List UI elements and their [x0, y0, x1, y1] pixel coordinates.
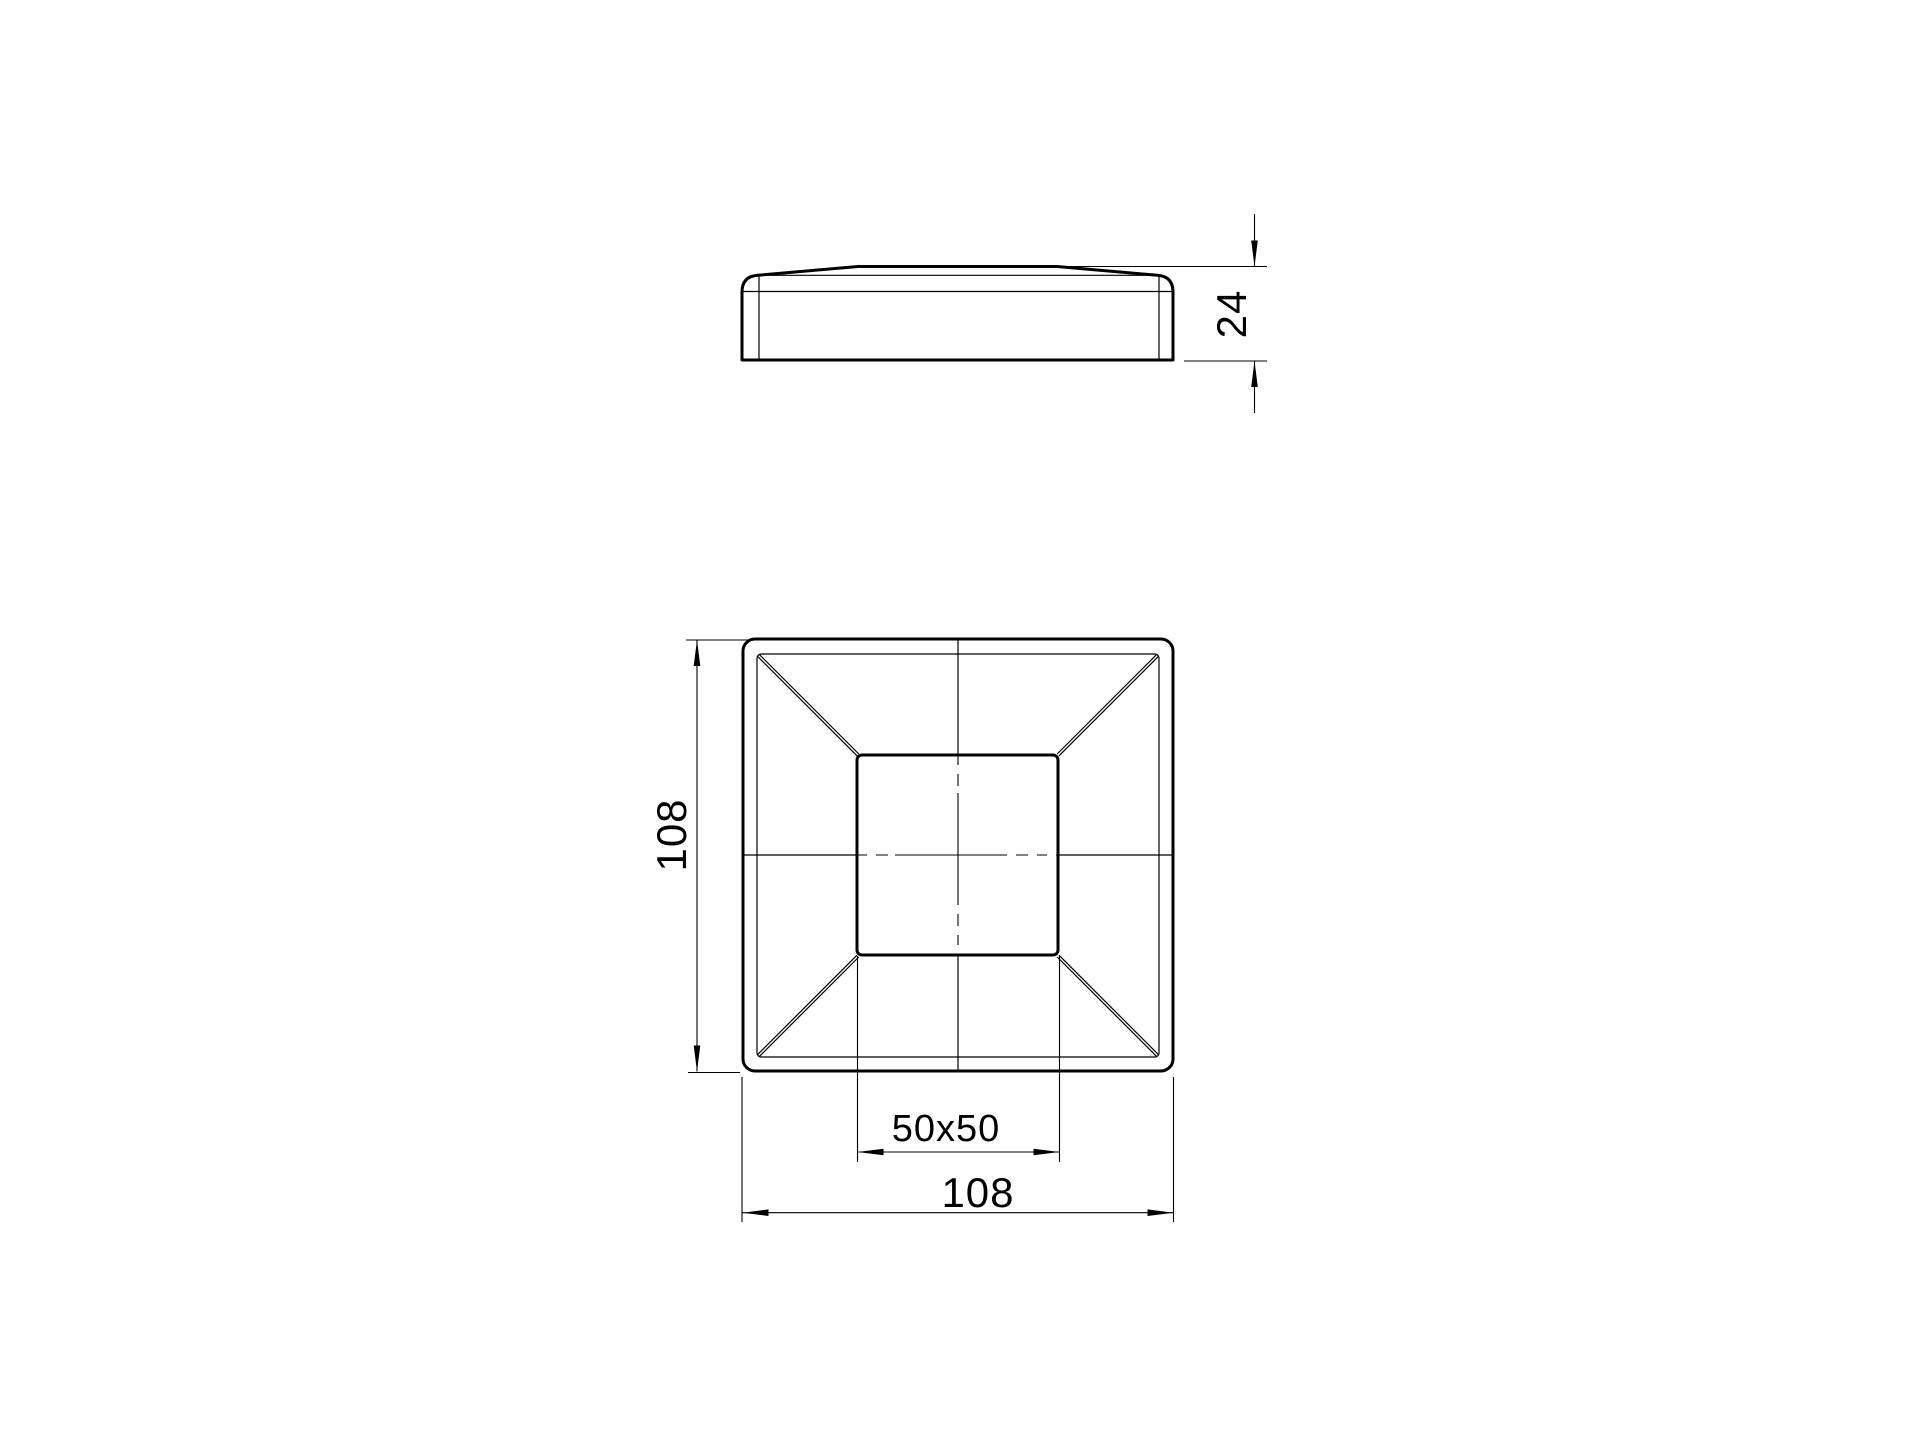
dim-horizontal-arrowhead-right — [1148, 1209, 1174, 1216]
dim-horizontal-label: 108 — [941, 1169, 1014, 1216]
dimension-cap-height: 24 — [1057, 214, 1267, 413]
technical-drawing-canvas: 24 108 50x50 108 — [0, 0, 1919, 1440]
slope-edge-bottom-right — [1057, 955, 1158, 1056]
dim-height-arrowhead-bottom — [1251, 361, 1258, 387]
dim-horizontal-arrowhead-left — [743, 1209, 769, 1216]
dim-opening-arrowhead-right — [1034, 1149, 1060, 1156]
dim-vertical-arrowhead-bottom — [694, 1046, 701, 1072]
dim-opening-label: 50x50 — [892, 1108, 1001, 1150]
plan-view — [743, 639, 1173, 1071]
side-view — [742, 267, 1173, 361]
plan-view-centerlines — [857, 755, 1058, 955]
side-view-outline — [742, 267, 1173, 361]
slope-edge-top-left — [758, 655, 859, 756]
dim-vertical-label: 108 — [648, 798, 695, 871]
slope-edge-bottom-left — [758, 955, 859, 1056]
dim-opening-arrowhead-left — [858, 1149, 884, 1156]
slope-edge-top-right — [1057, 655, 1158, 756]
dim-vertical-arrowhead-top — [694, 640, 701, 666]
drawing-sheet: 24 108 50x50 108 — [0, 0, 1919, 1440]
dim-height-arrowhead-top — [1251, 241, 1258, 267]
dimension-overall-vertical: 108 — [648, 640, 756, 1073]
dim-height-label: 24 — [1208, 290, 1255, 339]
